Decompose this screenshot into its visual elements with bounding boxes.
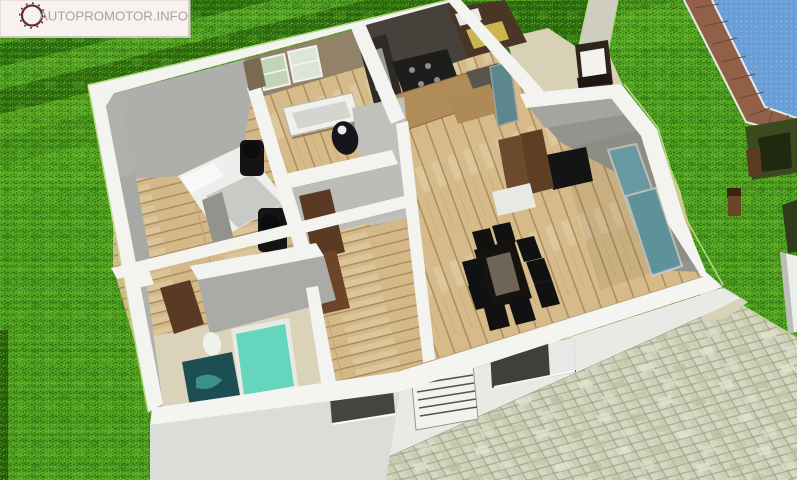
svg-text:AUTOPROMOTOR.INFO: AUTOPROMOTOR.INFO xyxy=(39,9,188,24)
